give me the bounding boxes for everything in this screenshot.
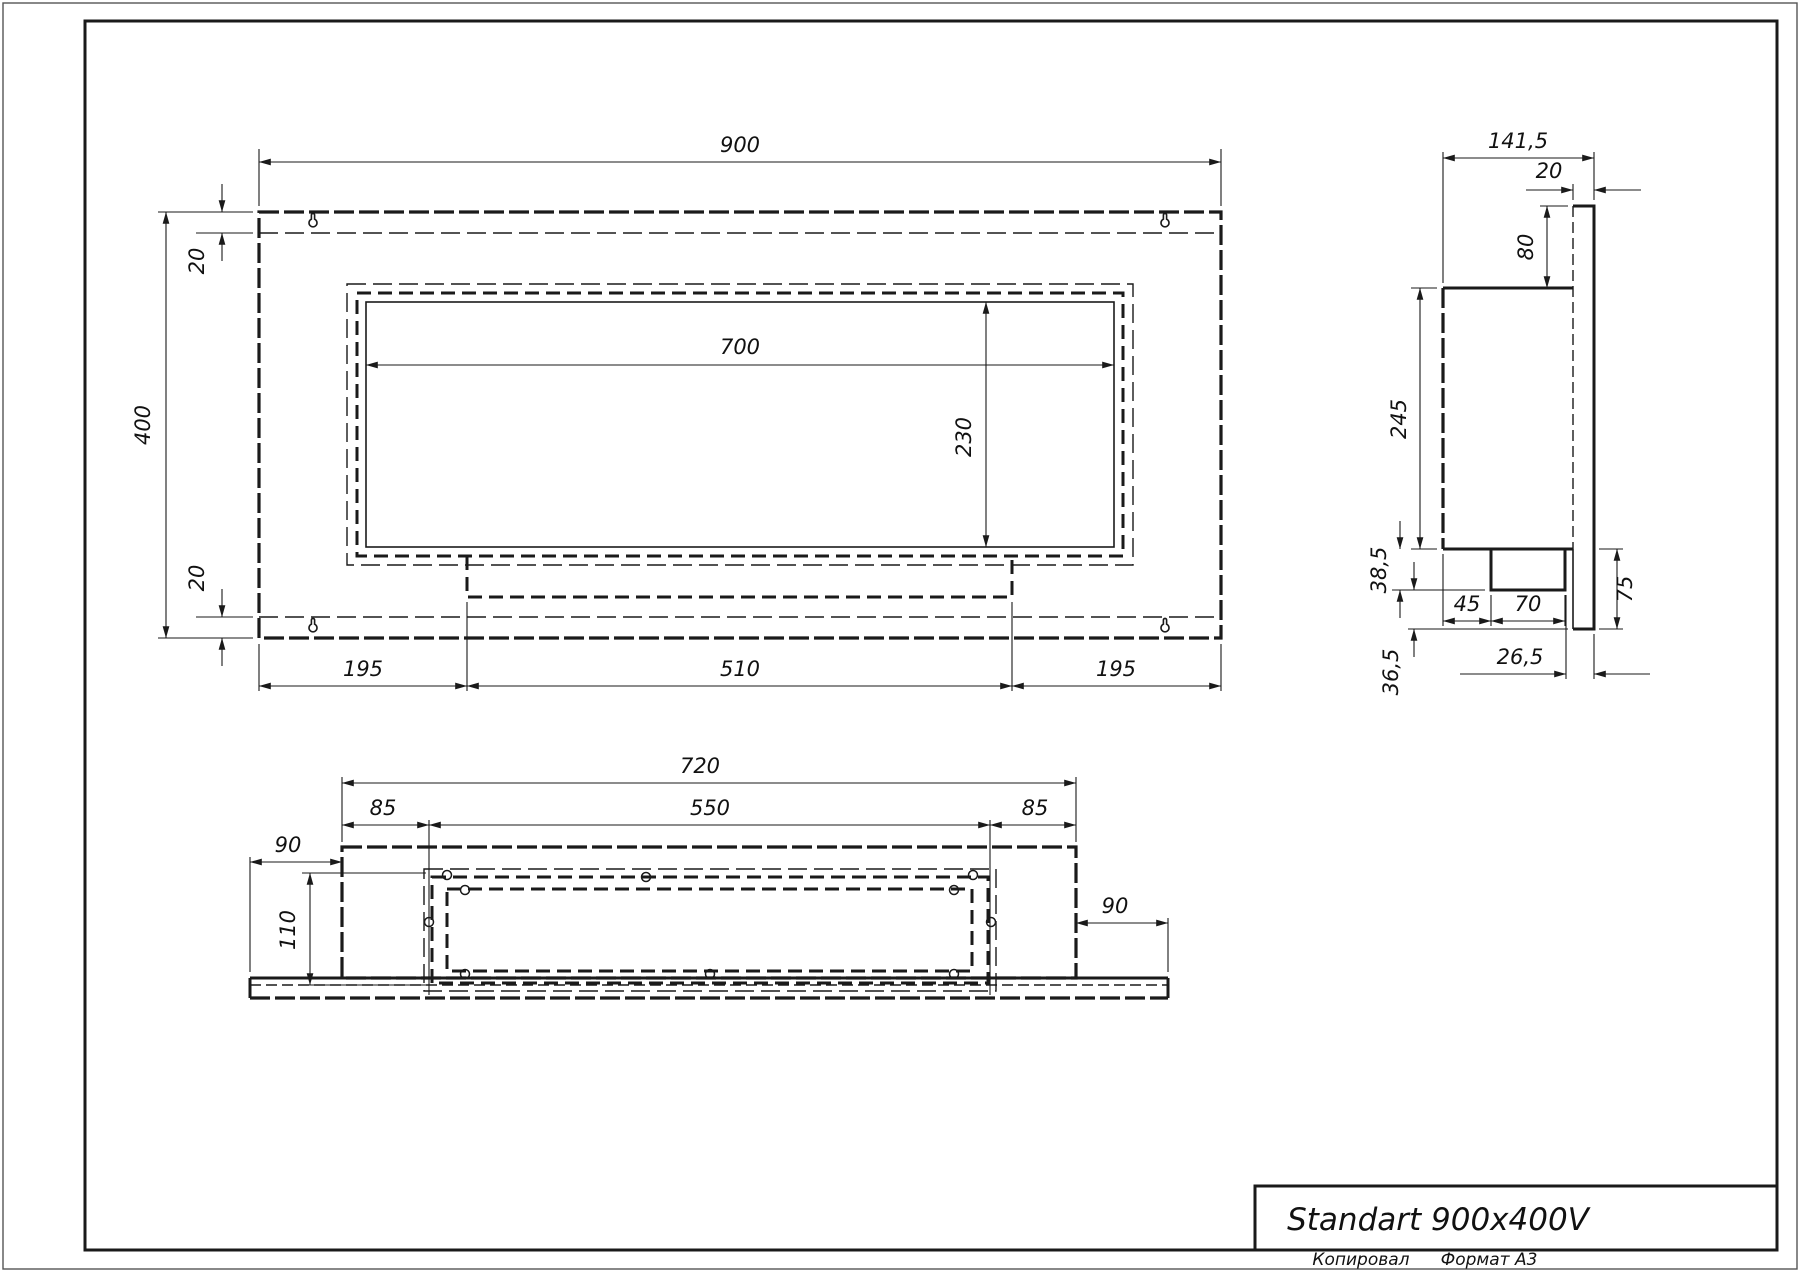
dim-label: 20 xyxy=(185,565,209,592)
bottom-tray-mid-dashed xyxy=(432,877,988,983)
dim-label: 230 xyxy=(952,417,976,457)
dim-lower-height: 75 xyxy=(1599,549,1637,629)
dim-bottom-tray-depth: 110 xyxy=(276,873,434,985)
drawing-sheet: 900 400 20 20 700 230 xyxy=(0,0,1800,1273)
front-burner-tray-hidden xyxy=(467,556,1012,597)
dim-label: 510 xyxy=(720,657,760,681)
sheet-footer: Копировал Формат А3 xyxy=(1312,1250,1537,1270)
dim-label: 195 xyxy=(1096,657,1136,681)
dim-label: 20 xyxy=(1536,159,1563,183)
dim-label: 26,5 xyxy=(1497,645,1544,669)
dim-front-width: 900 xyxy=(259,133,1221,206)
hole xyxy=(969,871,978,880)
dim-label: 80 xyxy=(1514,234,1538,261)
dim-label: 141,5 xyxy=(1488,129,1548,153)
dim-bottom-side-right: 90 xyxy=(1076,894,1168,972)
bottom-view: 720 85 550 85 90 90 110 xyxy=(250,754,1168,998)
keyhole-icon xyxy=(309,618,317,631)
dim-front-flange-bottom: 20 xyxy=(185,565,253,666)
title-block: Standart 900x400V xyxy=(1255,1186,1777,1250)
side-burner-notch xyxy=(1491,549,1565,590)
bottom-tray-inner-dashed xyxy=(447,889,972,971)
dim-label: 195 xyxy=(343,657,383,681)
bottom-tray-outer-dashed xyxy=(424,869,996,991)
dim-bottom-tray-row: 85 550 85 xyxy=(342,796,1076,995)
dim-label: 720 xyxy=(680,754,720,778)
dim-bottom-gap: 36,5 xyxy=(1379,562,1568,695)
dim-opening-width: 700 xyxy=(366,335,1114,365)
dim-label: 45 xyxy=(1454,592,1481,616)
front-outline xyxy=(259,212,1221,638)
dim-label: 90 xyxy=(275,833,302,857)
hole xyxy=(443,871,452,880)
footer-format-label: Формат А3 xyxy=(1441,1250,1538,1270)
screw-holes xyxy=(425,871,996,979)
dim-tray-inset: 26,5 xyxy=(1460,595,1650,679)
dim-top-offset: 80 xyxy=(1514,206,1568,288)
keyhole-icon xyxy=(1161,213,1169,226)
dim-body-height: 245 xyxy=(1387,288,1437,549)
dim-label: 85 xyxy=(1022,796,1049,820)
front-view: 900 400 20 20 700 230 xyxy=(131,133,1221,691)
dim-label: 90 xyxy=(1102,894,1129,918)
dim-label: 20 xyxy=(185,248,209,275)
keyhole-icon xyxy=(1161,618,1169,631)
dim-label: 700 xyxy=(720,335,760,359)
dim-bottom-side-left: 90 xyxy=(250,833,342,972)
front-opening-outer-dashed xyxy=(347,284,1133,565)
drawing-canvas: 900 400 20 20 700 230 xyxy=(0,0,1800,1273)
keyhole-icon xyxy=(309,213,317,226)
bottom-body-outline xyxy=(342,847,1076,978)
dim-panel-thickness: 20 xyxy=(1526,159,1641,200)
side-view: 141,5 20 80 245 38,5 xyxy=(1367,129,1650,695)
dim-label: 36,5 xyxy=(1379,649,1403,696)
dim-label: 85 xyxy=(370,796,397,820)
front-opening-hidden-dashed xyxy=(357,293,1123,556)
dim-front-bottom-row: 195 510 195 xyxy=(259,602,1221,691)
dim-label: 900 xyxy=(720,133,760,157)
dim-label: 38,5 xyxy=(1367,547,1391,594)
sheet-outer-border xyxy=(3,3,1797,1269)
dim-label: 110 xyxy=(276,910,300,950)
dim-front-flange-top: 20 xyxy=(185,184,253,274)
dim-label: 70 xyxy=(1515,592,1542,616)
dim-label: 550 xyxy=(690,796,730,820)
dim-label: 245 xyxy=(1387,399,1411,439)
drawing-title: Standart 900x400V xyxy=(1287,1202,1592,1238)
dim-label: 75 xyxy=(1613,576,1637,603)
side-back-panel xyxy=(1573,206,1594,629)
sheet-inner-frame xyxy=(85,21,1777,1250)
footer-copied-label: Копировал xyxy=(1312,1250,1409,1270)
dim-label: 400 xyxy=(131,405,155,445)
dim-opening-height: 230 xyxy=(952,302,986,547)
